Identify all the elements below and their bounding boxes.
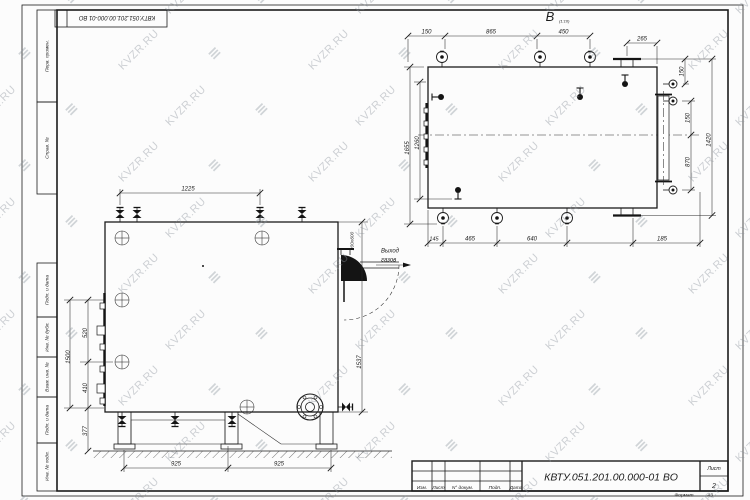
valve-icon [455, 187, 462, 199]
valve-icon [663, 186, 677, 194]
titleblock-col-podp: Подп. [489, 485, 502, 491]
top-view: В (1:10) [404, 9, 716, 247]
dim-left-1655: 1655 [405, 141, 411, 155]
dim-front-duct-200x600: 200х600 [349, 231, 355, 251]
port-icon [115, 355, 129, 369]
port-icon [240, 400, 254, 414]
valve-icon [133, 208, 142, 223]
dim-front-520: 520 [83, 327, 89, 338]
dim-front-1537: 1537 [357, 355, 363, 369]
valve-icon [228, 412, 237, 427]
dim-top-265: 265 [636, 37, 648, 43]
dim-left-1260: 1260 [415, 136, 421, 150]
titleblock-col-data: Дата [509, 485, 523, 491]
valve-icon [535, 52, 546, 68]
valve-icon [256, 208, 265, 223]
margin-label-sprav-no: Справ. № [45, 137, 51, 159]
dim-front-410: 410 [83, 382, 89, 393]
titleblock-doc-number: КВТУ.051.201.00.000-01 ВО [544, 472, 678, 484]
flange-icon [297, 394, 323, 420]
view-label-scale: (1:10) [559, 19, 570, 24]
dim-bottom-145: 145 [429, 237, 439, 243]
margin-label-vzam-inv: Взам. инв. № [45, 362, 51, 392]
margin-label-perv-primen: Перв. примен. [45, 40, 51, 72]
valve-icon [432, 94, 444, 101]
callout-gas-line1: Выход [381, 249, 400, 255]
format-value: А3 [706, 493, 713, 499]
top-stamp-doc-number: КВТУ.051.201.00.000-01 ВО [78, 14, 155, 20]
dim-front-925-left: 925 [171, 461, 182, 467]
dim-front-1500: 1500 [66, 350, 72, 364]
port-icon [115, 231, 129, 245]
dim-right-870: 870 [685, 156, 691, 167]
dim-front-925-right: 925 [274, 461, 285, 467]
dim-top-150: 150 [421, 30, 432, 36]
valve-icon [622, 75, 629, 87]
dim-front-377: 377 [83, 425, 89, 436]
dim-bottom-640: 640 [527, 237, 538, 243]
valve-icon [663, 80, 677, 88]
port-icon [115, 293, 129, 307]
gas-outlet-icon [337, 249, 411, 320]
front-view-dimensions: 1225 1500 520 410 377 1537 200х600 9 [64, 187, 368, 473]
valve-icon [492, 208, 503, 224]
margin-label-inv-dubl: Инв. № дубл. [45, 322, 51, 352]
dim-top-865: 865 [486, 30, 497, 36]
titleblock-sheet-label: Лист [706, 466, 721, 472]
valve-icon [116, 208, 125, 223]
title-block: Изм. Лист N° докум. Подп. Дата КВТУ.051.… [412, 461, 728, 499]
valve-icon [585, 52, 596, 68]
margin-label-inv-podl: Инв. № подл. [45, 451, 51, 481]
engineering-drawing: КВТУ.051.201.00.000-01 ВО Перв. примен. … [0, 0, 750, 500]
valve-icon [577, 88, 584, 100]
dim-right-150a: 150 [679, 66, 685, 77]
dim-front-1225: 1225 [181, 187, 195, 193]
valve-icon [298, 208, 307, 223]
dim-right-150b: 150 [685, 112, 691, 123]
valve-icon [562, 208, 573, 224]
dim-bottom-465: 465 [465, 237, 476, 243]
margin-label-podp-data-2: Подп. и дата [45, 405, 51, 435]
format-label: Формат [674, 493, 693, 499]
port-icon [255, 231, 269, 245]
margin-label-podp-data-1: Подп. и дата [45, 275, 51, 305]
titleblock-col-izm: Изм. [417, 485, 427, 491]
valve-icon [338, 403, 353, 412]
valve-icon [171, 412, 180, 427]
drawing-sheet: КВТУ.051.201.00.000-01 ВО Перв. примен. … [0, 0, 750, 500]
view-label-B: В [546, 9, 555, 24]
ground-hatch [93, 451, 392, 458]
callout-gas-line2: газов [381, 258, 396, 264]
titleblock-col-ndokum: N° докум. [452, 485, 473, 491]
titleblock-sheet-number: 2 [711, 483, 716, 490]
dim-right-1420: 1420 [706, 133, 712, 147]
dim-top-450: 450 [558, 30, 569, 36]
valve-icon [118, 412, 127, 427]
valve-icon [438, 208, 449, 224]
front-view: Выход газов 1225 1500 520 410 377 15 [64, 187, 411, 473]
dim-bottom-185: 185 [657, 237, 668, 243]
valve-icon [437, 52, 448, 68]
titleblock-col-list: Лист [431, 485, 444, 491]
